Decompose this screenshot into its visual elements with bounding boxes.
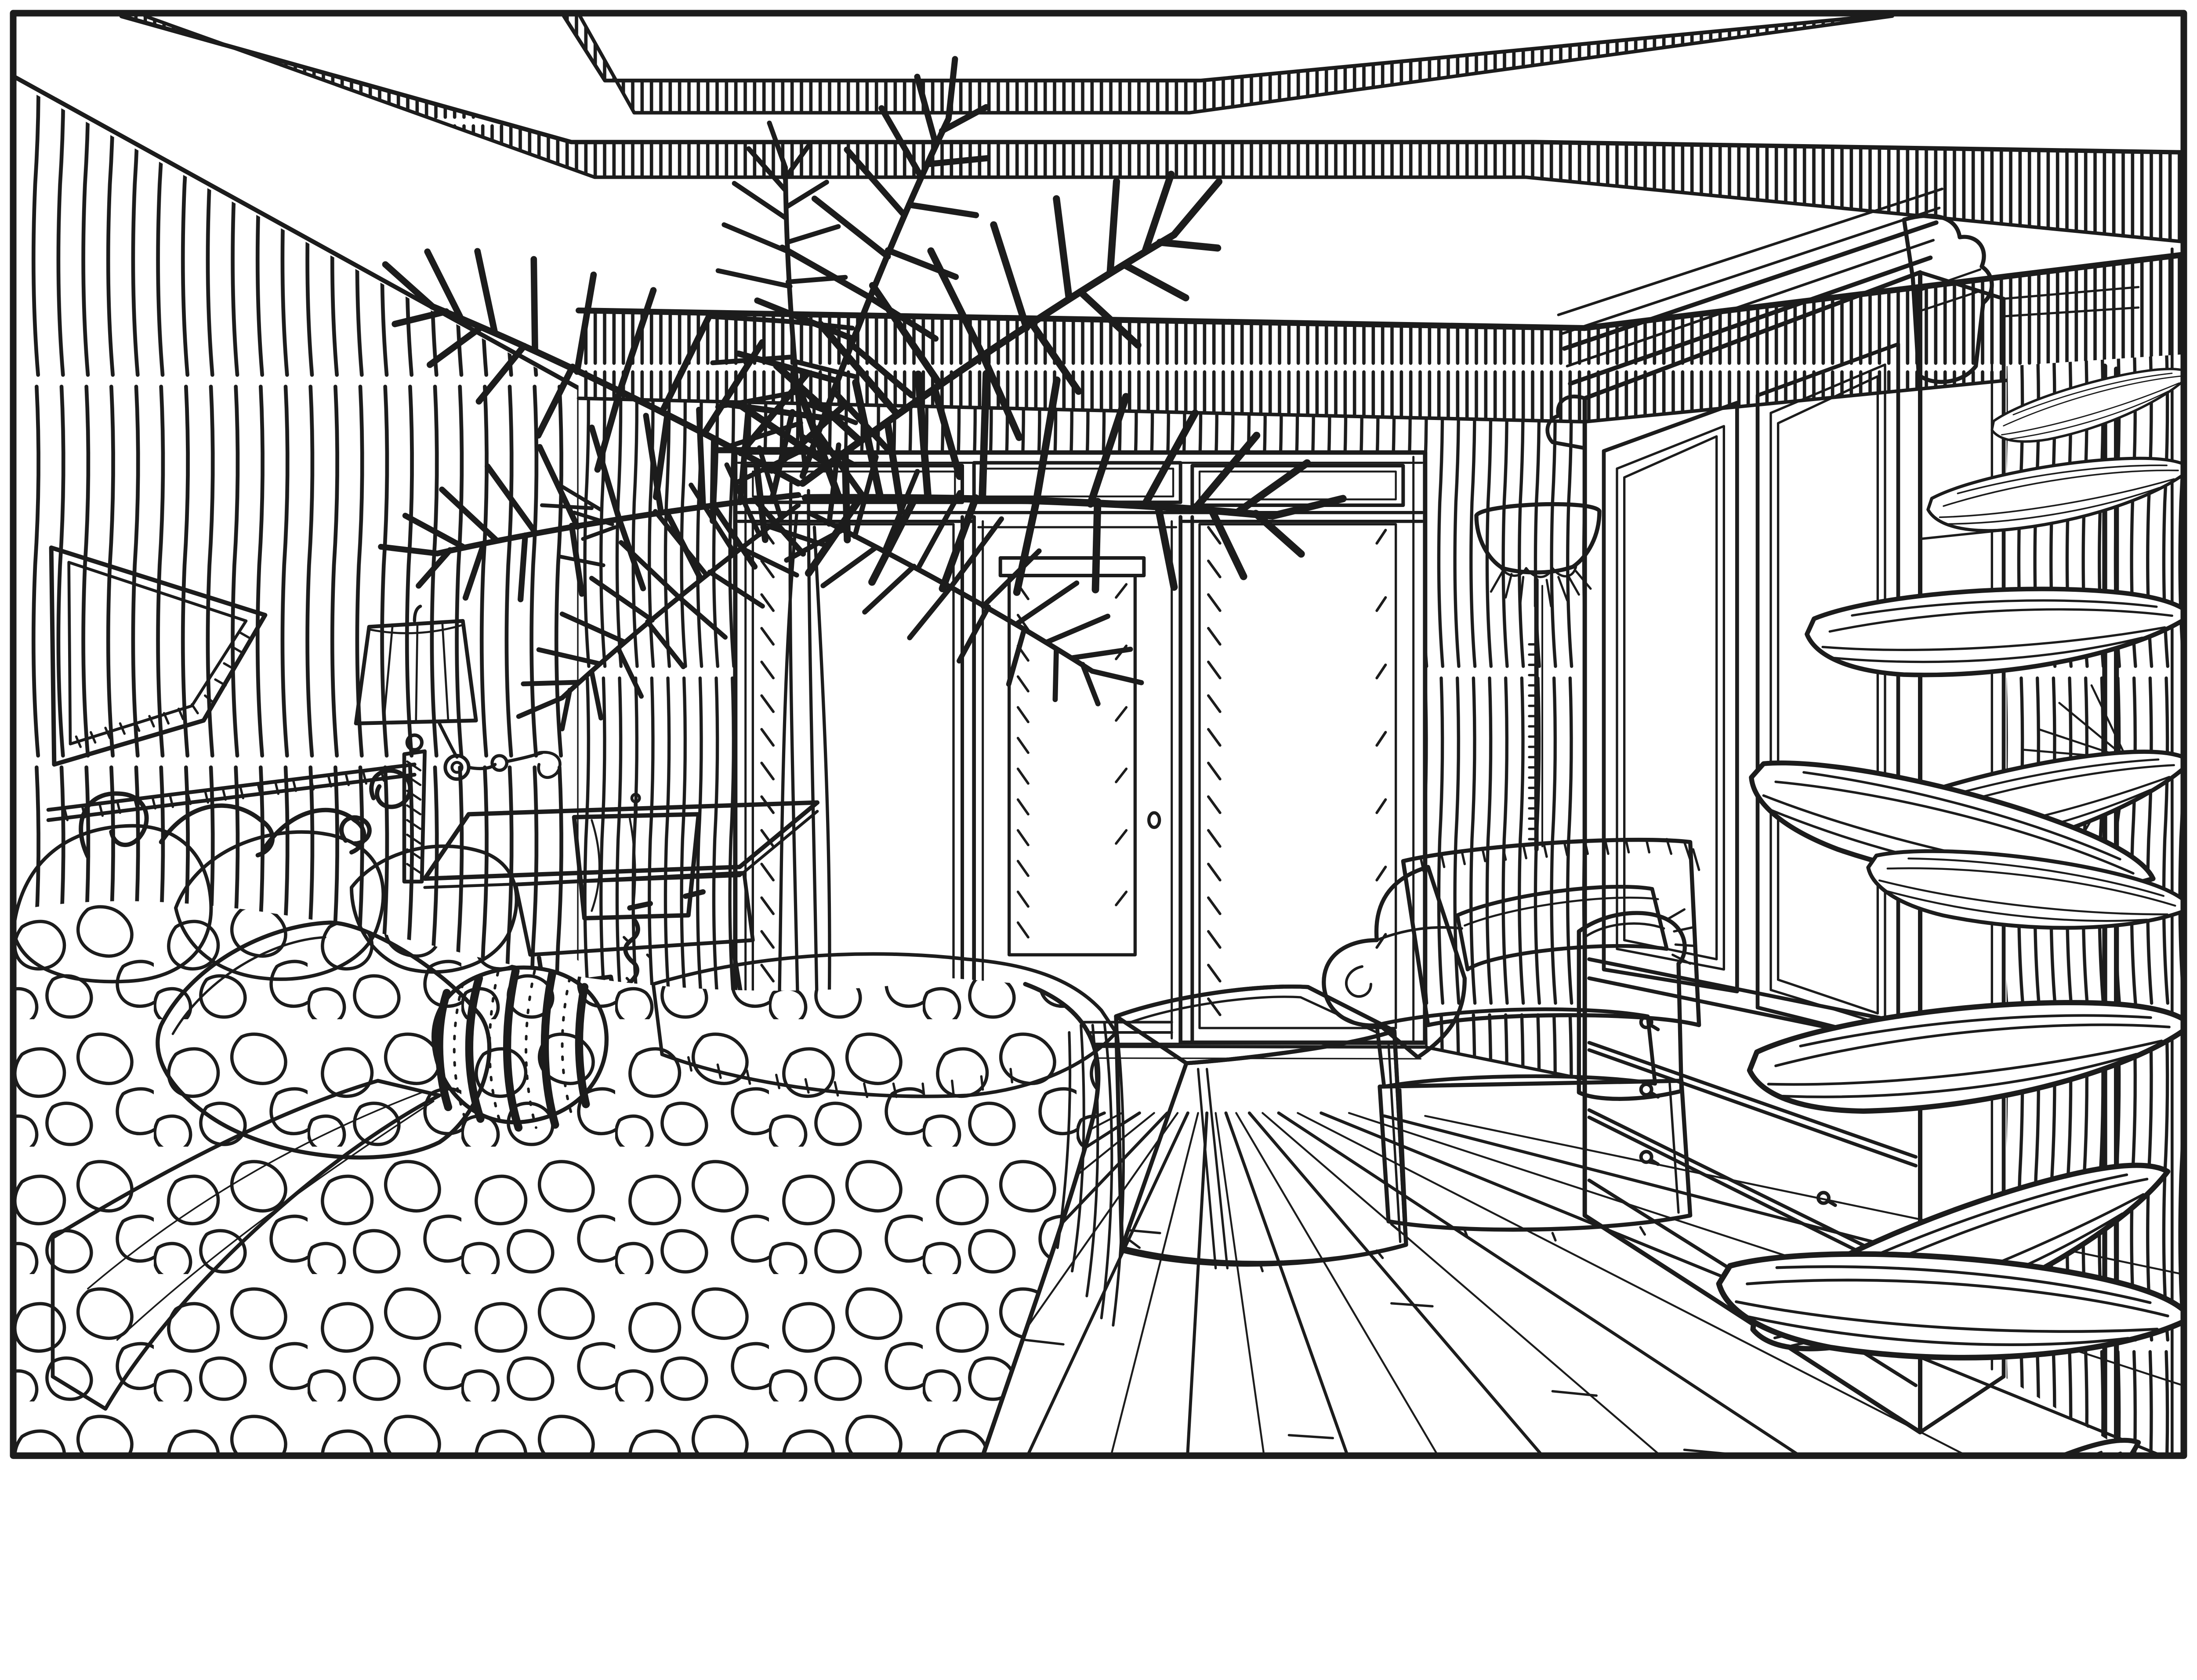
comforter <box>13 901 1098 1469</box>
sketch-canvas: Bedroom interior — pen-and-ink one-point… <box>0 0 2197 1469</box>
bedroom-sketch: Bedroom interior — pen-and-ink one-point… <box>0 0 2197 1469</box>
